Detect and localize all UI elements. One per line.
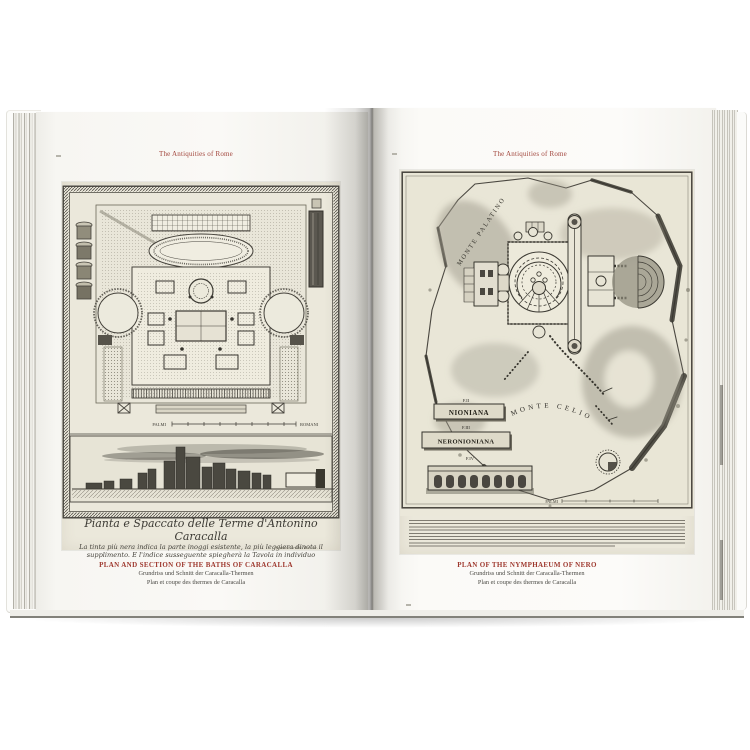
engraved-note-line-2: supplimento. E l'indice susseguente spie… <box>62 551 340 559</box>
page-edges-right <box>712 110 738 610</box>
margin-column-detail <box>309 199 323 287</box>
right-page: The Antiquities of Rome <box>372 108 716 612</box>
engraved-caption-text-block <box>409 520 685 548</box>
fore-edge-streak <box>720 540 723 600</box>
tablet-1-inscription: NIONIANA <box>449 409 489 417</box>
left-caption-german: Grundriss und Schnitt der Caracalla-Ther… <box>38 570 354 579</box>
open-book: The Antiquities of Rome <box>6 104 746 618</box>
tablet-2-inscription: NERONIONIANA <box>438 439 495 446</box>
book-bottom-page-block <box>10 610 744 618</box>
left-plate-baths-of-caracalla: PALMI ROMANI <box>62 182 340 550</box>
baths-section-view <box>70 436 334 502</box>
book-photo: The Antiquities of Rome <box>0 0 750 750</box>
fragment-label-f2: F.II <box>463 398 470 403</box>
right-plate-nymphaeum-of-nero: MONTE PALATINO MONTE CELIO <box>400 170 694 554</box>
left-page: The Antiquities of Rome <box>36 112 368 612</box>
left-caption-block: PLAN AND SECTION OF THE BATHS OF CARACAL… <box>38 560 354 587</box>
scale-label-palmi: PALMI <box>545 499 558 504</box>
engraver-signature: Piranesi Archit. dis. inc. <box>274 545 318 550</box>
book-cover-right-edge <box>737 112 747 610</box>
engraved-plate-title: Pianta e Spaccato delle Terme d'Antonino… <box>62 517 340 543</box>
right-caption-french: Plan et coupe des thermes de Caracalla <box>372 579 682 588</box>
scale-label-palmi: PALMI <box>152 422 166 427</box>
folio-mark <box>392 153 397 155</box>
folio-mark <box>56 155 61 157</box>
left-caption-french: Plan et coupe des thermes de Caracalla <box>38 579 354 588</box>
fragment-label-f4: F.IV <box>466 456 475 461</box>
caracalla-plan-engraving: PALMI ROMANI <box>62 185 340 519</box>
left-running-head: The Antiquities of Rome <box>36 150 356 158</box>
nymphaeum-map-engraving: MONTE PALATINO MONTE CELIO <box>400 170 694 516</box>
right-caption-german: Grundriss und Schnitt der Caracalla-Ther… <box>372 570 682 579</box>
scale-label-romani: ROMANI <box>300 422 319 427</box>
ruin-elevation <box>426 466 534 494</box>
baths-ground-plan <box>94 205 308 413</box>
folio-mark <box>406 604 411 606</box>
left-caption-title: PLAN AND SECTION OF THE BATHS OF CARACAL… <box>38 560 354 570</box>
right-caption-title: PLAN OF THE NYMPHAEUM OF NERO <box>372 560 682 570</box>
right-caption-block: PLAN OF THE NYMPHAEUM OF NERO Grundriss … <box>372 560 682 587</box>
book-drop-shadow <box>16 618 740 628</box>
page-edges-left <box>13 113 38 609</box>
engraved-title-block: Pianta e Spaccato delle Terme d'Antonino… <box>62 517 340 559</box>
fragment-label-f3: F.III <box>462 425 470 430</box>
right-running-head: The Antiquities of Rome <box>380 150 680 158</box>
fore-edge-streak <box>720 385 723 465</box>
